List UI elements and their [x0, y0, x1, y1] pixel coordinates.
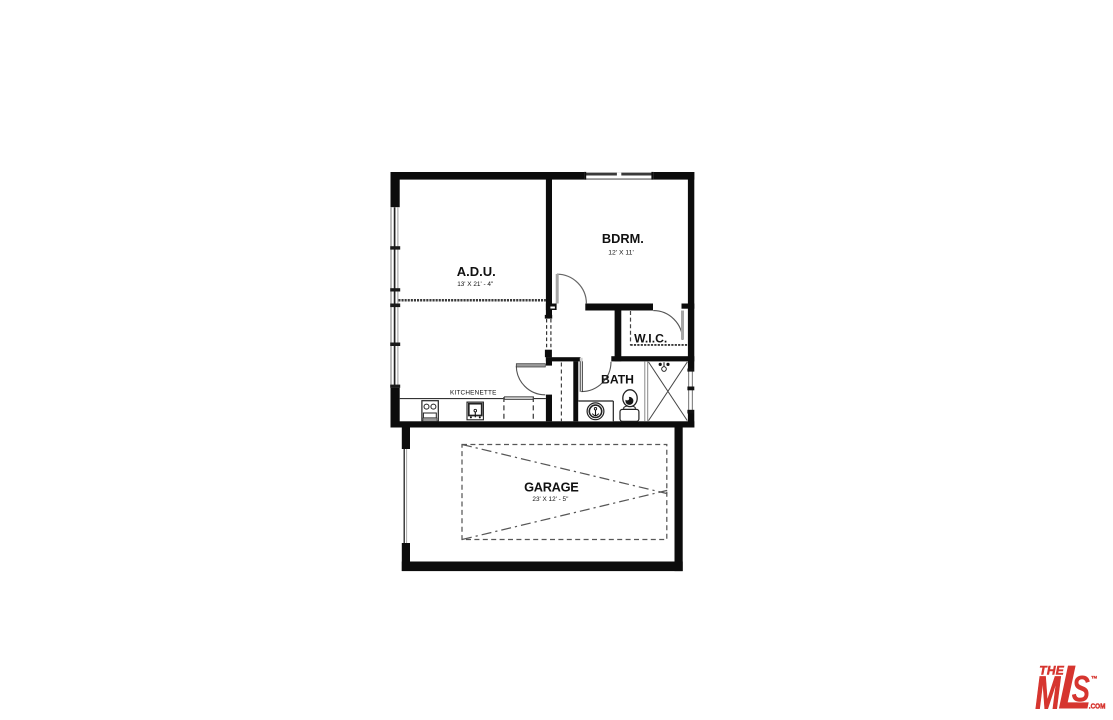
svg-text:TM: TM — [1091, 675, 1097, 680]
svg-text:BATH: BATH — [601, 372, 634, 386]
svg-text:W.I.C.: W.I.C. — [634, 331, 667, 345]
svg-text:13' X 21' - 4": 13' X 21' - 4" — [457, 281, 493, 288]
svg-text:BDRM.: BDRM. — [602, 231, 644, 246]
svg-text:S: S — [1072, 667, 1090, 709]
svg-text:GARAGE: GARAGE — [524, 480, 579, 495]
svg-text:12' X 11': 12' X 11' — [608, 249, 634, 256]
svg-text:.COM: .COM — [1089, 701, 1106, 710]
svg-text:A.D.U.: A.D.U. — [457, 264, 496, 279]
svg-text:M: M — [1035, 666, 1061, 718]
svg-text:23' X 12' - 5": 23' X 12' - 5" — [532, 496, 568, 503]
svg-text:KITCHENETTE: KITCHENETTE — [450, 389, 497, 396]
